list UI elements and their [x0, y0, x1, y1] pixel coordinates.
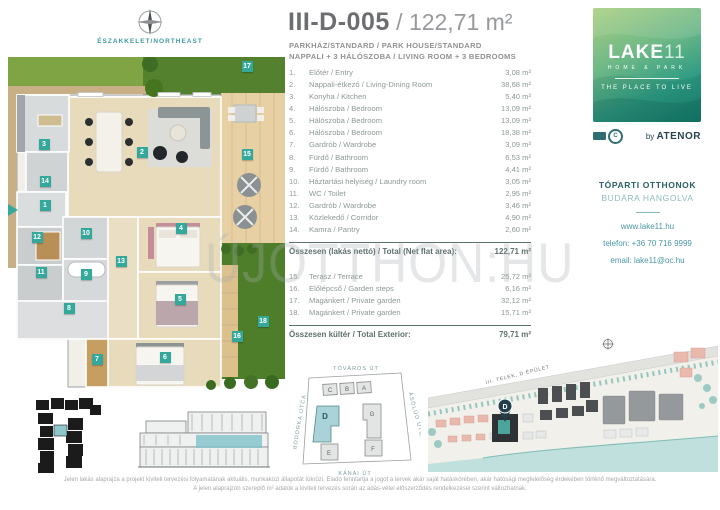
svg-text:A: A: [362, 386, 366, 392]
unit-code: III-D-005: [288, 8, 390, 36]
room-row: 9.Fürdő / Bathroom4,41 m²: [289, 163, 531, 175]
contact-headline: TÓPARTI OTTHONOK: [585, 180, 710, 190]
email-link[interactable]: email: lake11@oc.hu: [585, 256, 710, 265]
compass: ÉSZAKKELET/NORTHEAST: [70, 8, 230, 45]
armchair: [176, 151, 188, 163]
room-row: 5.Hálószoba / Bedroom13,09 m²: [289, 115, 531, 127]
subtitle-type: PARKHÁZ/STANDARD / PARK HOUSE/STANDARD: [289, 41, 549, 50]
plan-badge-4: 4: [176, 223, 187, 234]
plan-badge-18: 18: [258, 316, 269, 327]
map-compass-icon: [603, 339, 614, 350]
plan-badge-3: 3: [39, 139, 50, 150]
svg-text:F: F: [371, 447, 375, 453]
svg-text:E: E: [327, 451, 331, 457]
floor-plan-drawing: [8, 57, 285, 397]
room-row: 7.Gardrób / Wardrobe3,09 m²: [289, 139, 531, 151]
sofa: [158, 107, 206, 118]
area-map: III. TELEK, D ÉPÜLET D: [428, 336, 718, 477]
contact-block: TÓPARTI OTTHONOK BUDÁRA HANGOLVA www.lak…: [585, 180, 710, 265]
plan-badge-17: 17: [242, 61, 253, 72]
room-row: 8.Fürdő / Bathroom6,53 m²: [289, 151, 531, 163]
site-map: C B A D E G F TÓVÁROS ÚT KÁNAI ÚT BODORK…: [293, 362, 421, 485]
phone-link[interactable]: telefon: +36 70 716 9999: [585, 239, 710, 248]
logo-text: LAKE11 HOME & PARK THE PLACE TO LIVE: [593, 42, 701, 91]
compass-label: ÉSZAKKELET/NORTHEAST: [70, 38, 230, 45]
disclaimer: Jelen lakás alaprajza a projekt kiviteli…: [0, 476, 720, 493]
highlighted-floor: [196, 435, 262, 448]
room-row: 11.WC / Toilet2,95 m²: [289, 187, 531, 199]
compass-icon: [136, 8, 164, 36]
certification-badge-icon: [593, 132, 606, 140]
page-title: III-D-005 / 122,71 m²: [288, 8, 578, 37]
room-row: 4.Hálószoba / Bedroom13,09 m²: [289, 102, 531, 114]
svg-text:C: C: [328, 388, 333, 394]
room-row: 12.Gardrób / Wardrobe3,46 m²: [289, 200, 531, 212]
mini-floor-siteplan: [30, 396, 110, 481]
plan-badge-2: 2: [137, 147, 148, 158]
plan-badge-7: 7: [92, 354, 103, 365]
room-row: 6.Hálószoba / Bedroom18,38 m²: [289, 127, 531, 139]
plan-badge-5: 5: [175, 294, 186, 305]
room-row: 15.Terasz / Terrace25,72 m²: [289, 270, 531, 282]
plan-badge-10: 10: [81, 228, 92, 239]
plan-badge-15: 15: [242, 149, 253, 160]
svg-text:B: B: [345, 387, 349, 393]
room-row: 13.Közlekedő / Corridor4,90 m²: [289, 212, 531, 224]
plan-badge-11: 11: [36, 267, 47, 278]
room-row: 17.Magánkert / Private garden32,12 m²: [289, 294, 531, 306]
room-row: 10.Háztartási helyiség / Laundry room3,0…: [289, 175, 531, 187]
plan-badge-14: 14: [40, 176, 51, 187]
certification-circle-icon: C: [608, 129, 623, 144]
room-row: 14.Kamra / Pantry2,60 m²: [289, 224, 531, 236]
room-row: 1.Előtér / Entry3,08 m²: [289, 66, 531, 78]
contact-subheadline: BUDÁRA HANGOLVA: [585, 193, 710, 203]
floor-plan: 123456789101112131415161718: [8, 57, 285, 397]
plan-badge-1: 1: [40, 200, 51, 211]
garden-steps: [221, 265, 238, 377]
exterior-list: 15.Terasz / Terrace25,72 m²16.Előlépcső …: [289, 270, 531, 319]
room-corridor: [108, 217, 138, 339]
street-top: TÓVÁROS ÚT: [333, 365, 379, 372]
lake11-logo-card: LAKE11 HOME & PARK THE PLACE TO LIVE: [593, 8, 701, 122]
svg-text:G: G: [370, 412, 375, 418]
plan-badge-16: 16: [232, 331, 243, 342]
svg-text:D: D: [502, 404, 507, 411]
contact-divider: [636, 212, 660, 213]
atenor-byline: by ATENOR: [646, 131, 701, 142]
room-bathroom-8: [17, 301, 108, 339]
plan-badge-13: 13: [116, 256, 127, 267]
street-right: ÁSÓLÚD UTCA: [407, 391, 421, 441]
net-total-row: Összesen (lakás nettó) / Total (Net flat…: [289, 242, 531, 256]
svg-text:D: D: [322, 412, 328, 421]
website-link[interactable]: www.lake11.hu: [585, 222, 710, 231]
byline-row: C by ATENOR: [593, 128, 701, 144]
highlighted-unit: [54, 425, 67, 436]
dining-table: [96, 112, 122, 172]
plan-badge-8: 8: [64, 303, 75, 314]
coffee-table: [170, 125, 186, 141]
room-list: 1.Előtér / Entry3,08 m²2.Nappali-étkező …: [289, 66, 531, 236]
terrace-table: [234, 105, 256, 122]
subtitle-layout: NAPPALI + 3 HÁLÓSZOBA / LIVING ROOM + 3 …: [289, 52, 549, 61]
disclaimer-line2: A jelen alaprajzon szereplő m² adatok a …: [0, 485, 720, 494]
floorplan-datasheet-page: ÉSZAKKELET/NORTHEAST: [0, 0, 720, 510]
net-total-value: 122,71 m²: [495, 247, 531, 256]
room-row: 18.Magánkert / Private garden15,71 m²: [289, 306, 531, 318]
armchair: [153, 146, 167, 160]
unit-area: 122,71 m²: [409, 9, 513, 35]
room-row: 3.Konyha / Kitchen5,40 m²: [289, 90, 531, 102]
disclaimer-line1: Jelen lakás alaprajza a projekt kiviteli…: [0, 476, 720, 485]
room-row: 2.Nappali-étkező / Living-Dining Room38,…: [289, 78, 531, 90]
plan-badge-9: 9: [81, 269, 92, 280]
room-row: 16.Előlépcső / Garden steps6,16 m²: [289, 282, 531, 294]
plan-badge-6: 6: [160, 352, 171, 363]
building-elevation: [138, 405, 270, 478]
plan-badge-12: 12: [32, 232, 43, 243]
certification-logos: C: [593, 129, 623, 144]
